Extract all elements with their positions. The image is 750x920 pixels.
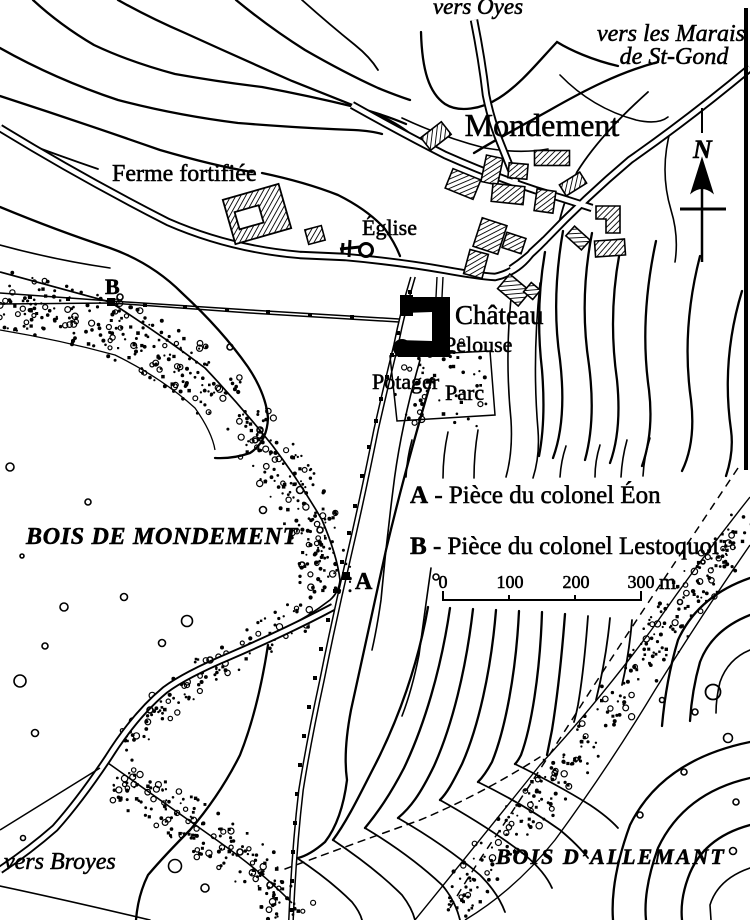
svg-text:vers Broyes: vers Broyes	[4, 849, 116, 875]
svg-text:0: 0	[439, 572, 448, 592]
svg-text:Parc: Parc	[445, 380, 484, 405]
svg-text:200: 200	[563, 572, 590, 592]
svg-text:B: B	[105, 274, 120, 299]
svg-text:m: m	[659, 569, 676, 594]
svg-text:vers Oyes: vers Oyes	[433, 0, 523, 19]
svg-text:Pelouse: Pelouse	[444, 332, 512, 357]
svg-text:Église: Église	[362, 215, 417, 240]
svg-text:de St-Gond: de St-Gond	[620, 44, 730, 70]
svg-text:B - Pièce du colonel Lestoquoi: B - Pièce du colonel Lestoquoi	[410, 533, 719, 560]
svg-text:A: A	[355, 569, 373, 595]
svg-text:Potager: Potager	[372, 369, 440, 394]
svg-text:100: 100	[497, 572, 524, 592]
svg-text:Mondement: Mondement	[465, 107, 620, 143]
svg-text:Ferme fortifiée: Ferme fortifiée	[112, 161, 257, 187]
svg-text:BOIS D’ALLEMANT: BOIS D’ALLEMANT	[495, 844, 726, 869]
svg-text:Château: Château	[455, 300, 544, 330]
svg-text:N: N	[692, 135, 713, 164]
svg-text:BOIS DE MONDEMENT: BOIS DE MONDEMENT	[25, 524, 299, 550]
svg-text:300: 300	[628, 572, 655, 592]
svg-text:A - Pièce du colonel Éon: A - Pièce du colonel Éon	[410, 481, 661, 509]
